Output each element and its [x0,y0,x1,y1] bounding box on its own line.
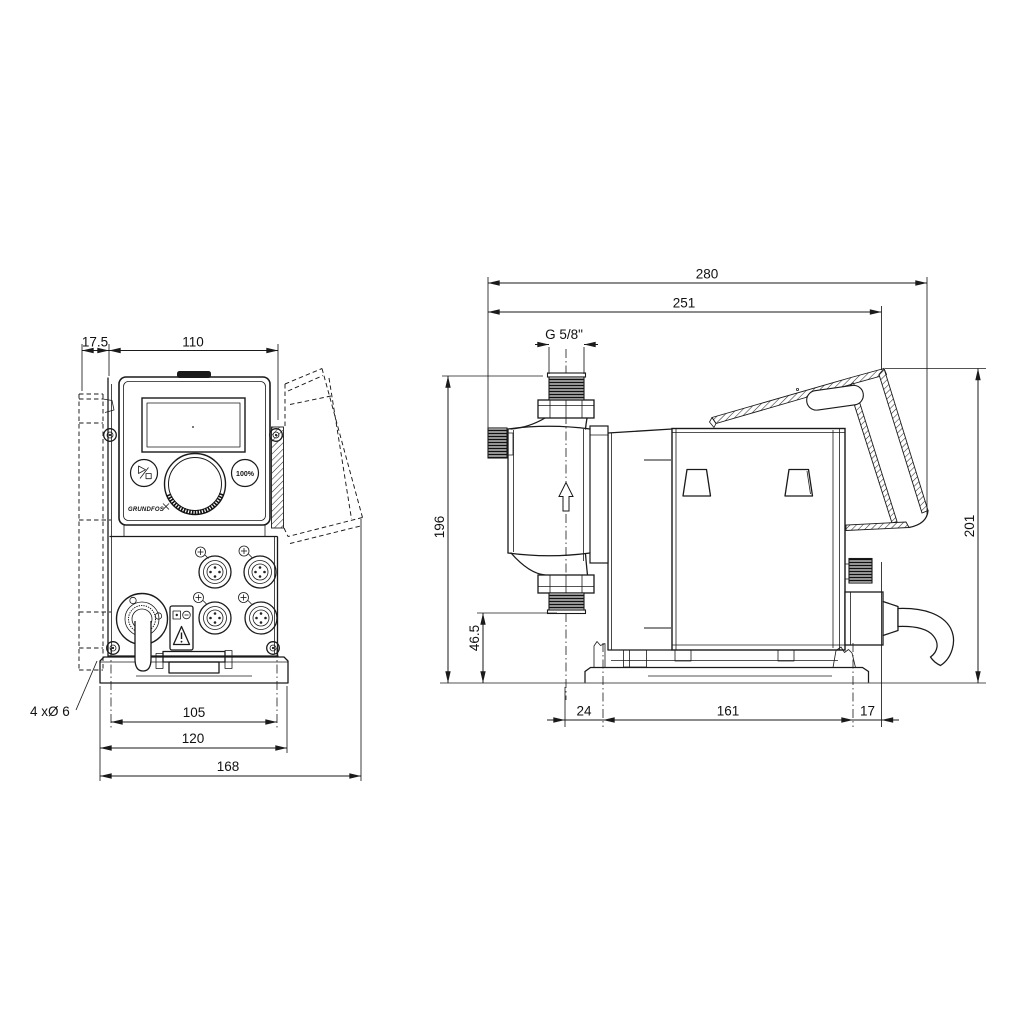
dim-text-168: 168 [217,759,240,774]
dim-text-196: 196 [432,516,447,539]
panel-side-edge-hatch [272,427,284,528]
panel-bottom-edge [846,522,909,531]
gland-thread [849,559,872,584]
wall-plate-hidden [79,394,114,670]
head-bracket [590,426,608,563]
panel-top-tab [177,371,211,378]
max-capacity-button: 100% [232,460,259,487]
dosing-head [488,373,608,614]
power-cable-side [898,608,954,665]
discharge-port-cap [548,373,586,377]
side-view: 280 251 G 5/8" 196 46.5 201 [432,267,986,728]
head-body [508,426,590,561]
flow-direction-arrow-icon [559,483,573,512]
warning-triangle-icon [174,627,190,645]
technical-drawing-page: 100% GRUNDFOS [0,0,1024,1024]
tilted-panel-hidden-front [284,369,363,544]
technical-drawing: 100% GRUNDFOS [0,0,1024,1024]
mounting-holes-note: 4 xØ 6 [30,704,70,719]
display-dot [192,426,194,428]
power-cable-front [135,621,151,671]
thread-size-label: G 5/8" [545,327,583,342]
start-stop-button [131,460,158,487]
dim-text-24: 24 [576,704,592,719]
brand-logo-text: GRUNDFOS [128,507,164,513]
cable-gland [845,559,954,666]
dim-text-105: 105 [183,705,206,720]
click-wheel [165,454,226,515]
dim-text-161: 161 [717,704,740,719]
socket-icon [239,593,252,605]
warning-label-plate [170,606,193,650]
head-bottom-taper [511,553,545,575]
panel-pin [796,388,798,390]
union-nut-top [538,400,594,418]
socket-icon [194,593,207,605]
front-view: 100% GRUNDFOS [30,335,363,782]
socket [199,556,231,588]
dim-text-280: 280 [696,267,719,282]
suction-thread [549,593,584,610]
dim-text-251: 251 [673,296,696,311]
panel-corner [909,511,928,528]
socket-icon [239,546,252,558]
union-nut-bottom [538,575,594,593]
socket [244,556,276,588]
socket [245,602,277,634]
max-capacity-label: 100% [236,471,255,478]
dim-text-17: 17 [860,704,875,719]
dim-text-110: 110 [182,335,204,350]
dim-text-120: 120 [182,731,205,746]
socket-icon [196,547,209,559]
socket [199,602,231,634]
dim-text-46-5: 46.5 [467,625,482,651]
discharge-thread [549,377,584,400]
connector-sockets [194,546,278,634]
cable-strain-relief [883,602,898,636]
screw-icon [104,429,117,442]
cable-flange [117,594,168,672]
dim-text-17-5: 17.5 [82,335,108,350]
pump-body-side [608,429,845,651]
display [142,398,245,452]
vent-valve-knob [488,428,513,458]
dim-text-201: 201 [962,515,977,538]
